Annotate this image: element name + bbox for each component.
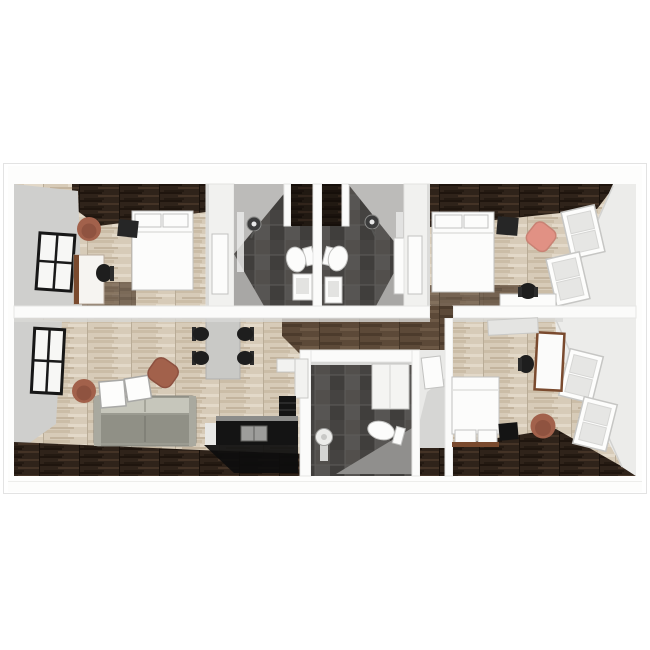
coffee-table bbox=[124, 375, 151, 401]
bathroom-right-wall bbox=[412, 350, 420, 476]
desk-chair bbox=[96, 264, 114, 282]
room-bathroom-left bbox=[234, 184, 317, 306]
bed-pillow bbox=[464, 215, 488, 228]
bathroom-top-wall bbox=[300, 350, 420, 362]
window-icon bbox=[31, 328, 64, 393]
wall-face-edge bbox=[14, 318, 430, 322]
double-bed bbox=[432, 212, 494, 292]
door-leaf bbox=[408, 236, 422, 294]
niche-wall bbox=[284, 184, 291, 226]
bed-pillow bbox=[455, 430, 476, 443]
room-bathroom-bottom bbox=[300, 350, 420, 476]
wall-bedroom1-bathroom1 bbox=[206, 184, 234, 306]
hall-floor bbox=[420, 318, 445, 352]
tv-stand bbox=[496, 216, 518, 236]
round-armchair bbox=[77, 217, 101, 241]
tv-stand bbox=[117, 219, 139, 238]
door-leaf bbox=[488, 318, 539, 336]
dining-chair bbox=[237, 351, 254, 365]
bed-headboard bbox=[452, 442, 499, 447]
door-leaf bbox=[212, 234, 228, 294]
window-icon bbox=[36, 233, 75, 291]
closet-dark-floor bbox=[420, 448, 445, 476]
tv-stand bbox=[498, 422, 518, 441]
counter-end-panel bbox=[205, 423, 216, 445]
desk-chair bbox=[518, 355, 534, 373]
doorway-opening bbox=[430, 306, 453, 318]
room-bathroom-right bbox=[321, 184, 406, 306]
bed-pillow bbox=[135, 214, 161, 227]
dining-chair bbox=[237, 327, 254, 341]
bed-pillow bbox=[478, 430, 497, 443]
shower-glass-panel bbox=[237, 212, 244, 272]
room-hall-closet bbox=[420, 318, 445, 476]
dining-chair bbox=[192, 351, 209, 365]
double-bed bbox=[452, 377, 499, 447]
bed-pillow bbox=[163, 214, 188, 227]
vanity-sink bbox=[293, 274, 312, 300]
wall-bathroom2-bedroom2 bbox=[404, 184, 430, 315]
closet-niche bbox=[322, 184, 342, 226]
dining-chair bbox=[192, 327, 209, 341]
kitchen-upper-cabinet bbox=[295, 359, 308, 398]
vanity-sink bbox=[325, 277, 342, 303]
floor-plan-canvas bbox=[0, 0, 650, 650]
kitchen-sink bbox=[241, 426, 267, 441]
counter-back-edge bbox=[216, 416, 298, 421]
room-bedroom-bottom-right bbox=[452, 318, 636, 476]
room-bedroom-top-left bbox=[14, 184, 206, 306]
tall-cabinet bbox=[372, 364, 409, 409]
door-leaf bbox=[421, 356, 444, 389]
wall-bathroom-divider bbox=[313, 184, 322, 306]
room-bedroom-top-right bbox=[430, 184, 636, 318]
coffee-table bbox=[99, 380, 126, 408]
floor-plan-image bbox=[0, 0, 650, 650]
bed-pillow bbox=[435, 215, 462, 228]
dining-table bbox=[206, 317, 240, 379]
closet-niche bbox=[291, 184, 313, 226]
niche-wall bbox=[342, 184, 349, 226]
desk bbox=[535, 332, 565, 390]
round-armchair bbox=[531, 414, 556, 439]
double-bed bbox=[132, 211, 193, 290]
round-armchair bbox=[72, 379, 96, 403]
